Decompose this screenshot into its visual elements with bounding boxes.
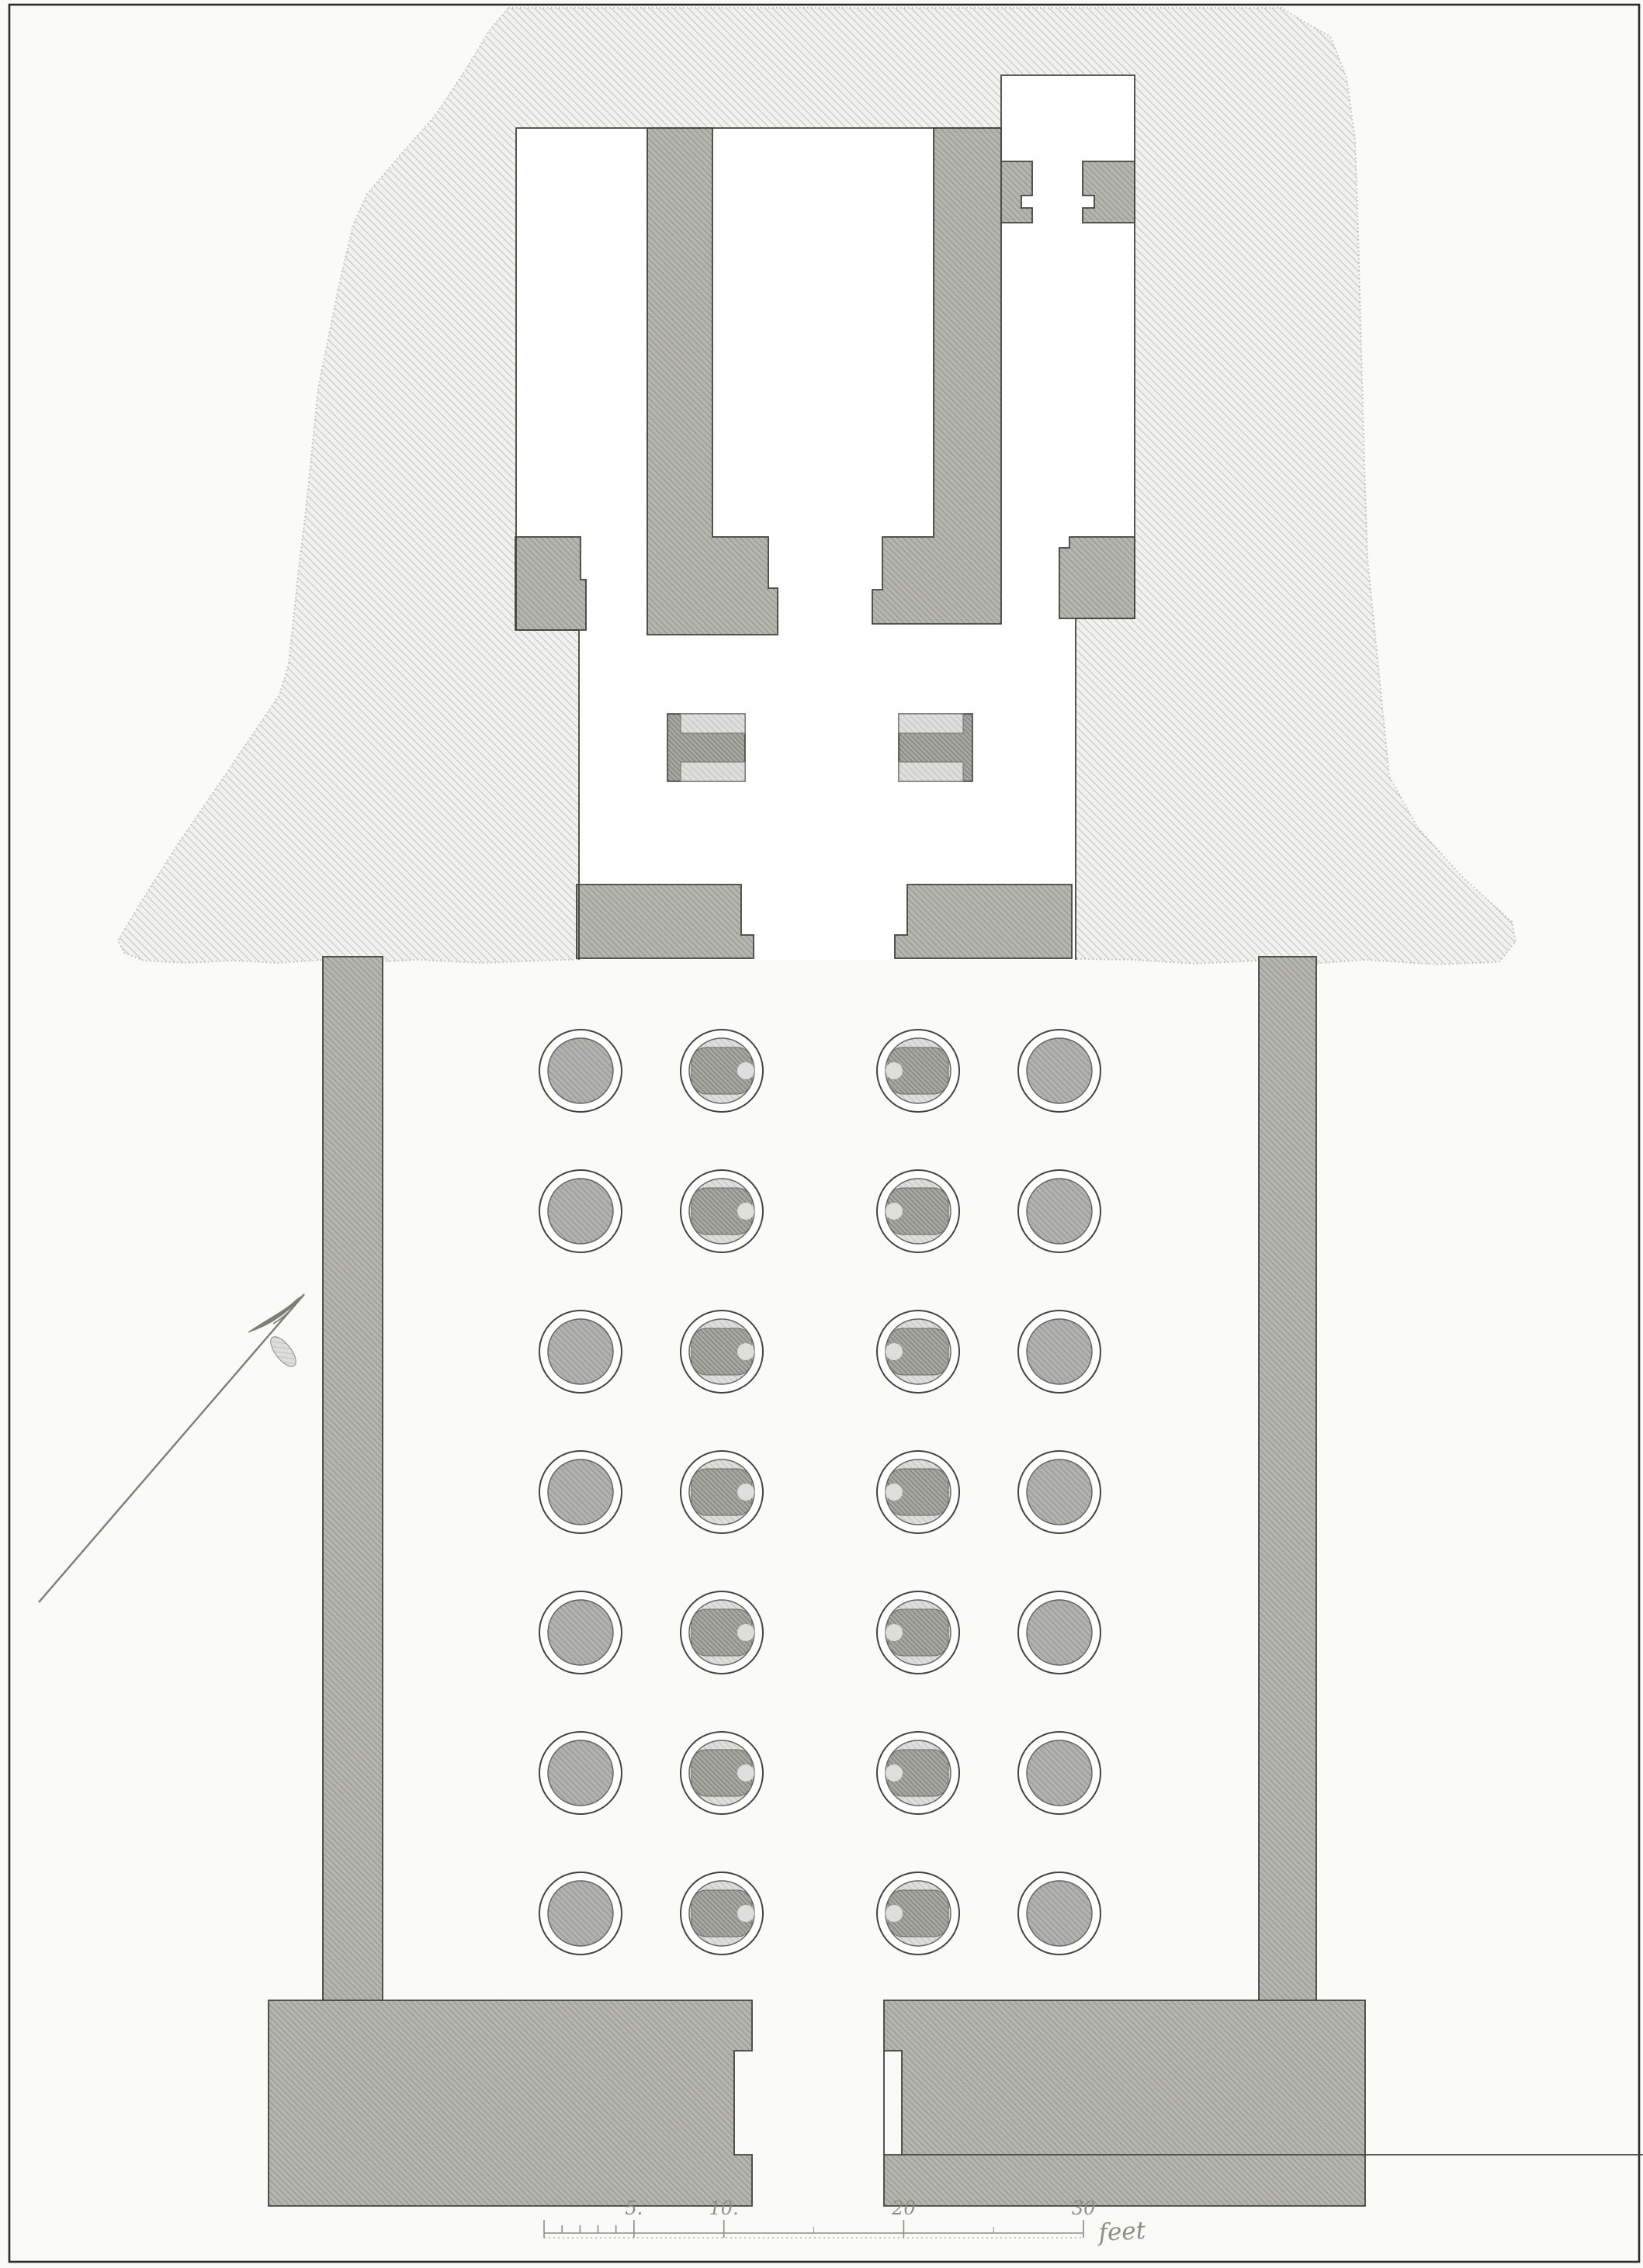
- column-r3-f4: [1018, 1311, 1101, 1393]
- column-r6-f2: [681, 1732, 763, 1814]
- column-r7-f2: [681, 1872, 763, 1955]
- pier-west-bottom-tab: [681, 762, 745, 781]
- pier-east: [899, 714, 972, 781]
- column-r4-f2: [681, 1451, 763, 1533]
- column-r4-f3: [877, 1451, 959, 1533]
- column-r1-f3: [877, 1030, 959, 1112]
- scale-label-20: 20: [891, 2197, 916, 2219]
- column-r1-f1: [539, 1030, 622, 1112]
- north-room-left-door-jamb: [1001, 161, 1032, 223]
- left-chamber-door-jamb: [515, 537, 586, 630]
- pier-west: [667, 714, 745, 781]
- court-wall-east: [1259, 957, 1316, 2003]
- column-r7-f1: [539, 1872, 622, 1955]
- scale-label-5: 5.: [625, 2197, 643, 2219]
- column-r7-f3: [877, 1872, 959, 1955]
- column-r5-f1: [539, 1591, 622, 1674]
- column-r5-f3: [877, 1591, 959, 1674]
- column-r2-f3: [877, 1170, 959, 1252]
- column-r6-f4: [1018, 1732, 1101, 1814]
- scale-label-30: 30: [1072, 2197, 1096, 2219]
- column-r2-f1: [539, 1170, 622, 1252]
- court-wall-west: [323, 957, 383, 2003]
- column-r3-f1: [539, 1311, 622, 1393]
- scale-unit-label: feet: [1097, 2217, 1147, 2247]
- column-r5-f2: [681, 1591, 763, 1674]
- plate-sheet: 5.10.2030 feet: [0, 0, 1643, 2268]
- pier-west-top-tab: [681, 714, 745, 733]
- pier-east-bottom-tab: [899, 762, 963, 781]
- column-r3-f2: [681, 1311, 763, 1393]
- scale-label-10: 10.: [709, 2197, 739, 2219]
- column-r6-f1: [539, 1732, 622, 1814]
- column-r3-f3: [877, 1311, 959, 1393]
- column-r6-f3: [877, 1732, 959, 1814]
- column-r7-f4: [1018, 1872, 1101, 1955]
- temple-plan-figure: 5.10.2030 feet: [0, 0, 1643, 2268]
- column-r4-f4: [1018, 1451, 1101, 1533]
- gateway-block-west: [577, 885, 754, 958]
- column-r1-f2: [681, 1030, 763, 1112]
- temple-footprint: [516, 75, 1135, 960]
- north-room-right-door-jamb: [1083, 161, 1135, 223]
- pylon-west: [269, 2000, 752, 2206]
- column-r2-f4: [1018, 1170, 1101, 1252]
- pier-east-top-tab: [899, 714, 963, 733]
- column-r4-f1: [539, 1451, 622, 1533]
- right-corridor-door-jamb: [1059, 537, 1135, 618]
- column-r2-f2: [681, 1170, 763, 1252]
- column-r5-f4: [1018, 1591, 1101, 1674]
- column-r1-f4: [1018, 1030, 1101, 1112]
- gateway-block-east: [895, 885, 1072, 958]
